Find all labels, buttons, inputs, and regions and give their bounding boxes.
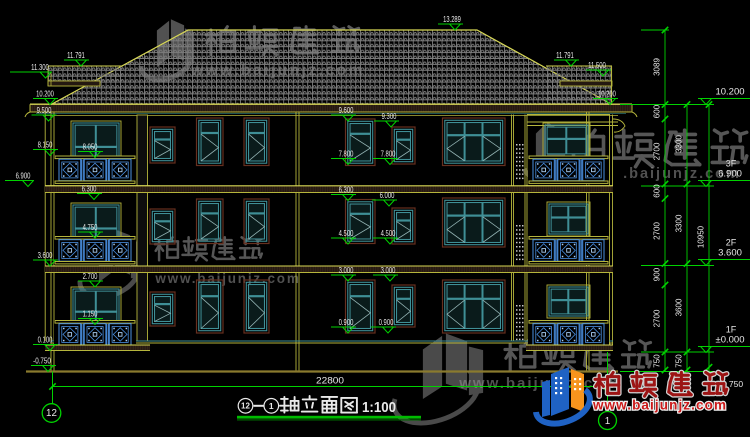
svg-text:11.500: 11.500	[588, 61, 606, 70]
svg-text:900: 900	[653, 267, 662, 281]
svg-text:600: 600	[653, 104, 662, 118]
svg-text:1F: 1F	[726, 325, 737, 335]
svg-text:3.600: 3.600	[718, 248, 742, 259]
svg-text:8.150: 8.150	[38, 141, 53, 150]
svg-text:8.050: 8.050	[83, 143, 98, 152]
svg-text:9.600: 9.600	[339, 106, 354, 115]
svg-text:6.900: 6.900	[718, 169, 742, 180]
svg-text:6.000: 6.000	[380, 191, 395, 200]
svg-text:1: 1	[269, 401, 274, 411]
svg-text:3F: 3F	[726, 159, 737, 169]
svg-text:9.500: 9.500	[37, 106, 52, 115]
svg-text:10.200: 10.200	[715, 87, 744, 98]
svg-text:3.000: 3.000	[381, 266, 396, 275]
svg-text:11.791: 11.791	[556, 51, 574, 60]
svg-text:7.800: 7.800	[381, 150, 396, 159]
svg-text:750: 750	[675, 354, 684, 368]
svg-text:13.289: 13.289	[443, 15, 461, 24]
svg-text:22800: 22800	[316, 376, 344, 386]
svg-text:1:100: 1:100	[362, 399, 396, 416]
svg-text:0.100: 0.100	[38, 336, 53, 345]
svg-text:3.000: 3.000	[339, 266, 354, 275]
svg-text:-0.750: -0.750	[33, 357, 51, 366]
svg-text:2700: 2700	[653, 222, 662, 240]
svg-text:750: 750	[729, 379, 743, 389]
svg-text:6.300: 6.300	[82, 185, 97, 194]
svg-text:10.200: 10.200	[36, 90, 54, 99]
svg-text:12: 12	[46, 408, 57, 419]
svg-text:600: 600	[653, 184, 662, 198]
svg-text:7.800: 7.800	[339, 150, 354, 159]
svg-text:11.791: 11.791	[67, 51, 85, 60]
svg-text:10950: 10950	[697, 225, 706, 248]
svg-text:1.150: 1.150	[83, 310, 98, 319]
svg-text:3089: 3089	[653, 58, 662, 76]
svg-text:2700: 2700	[653, 142, 662, 160]
svg-text:0.900: 0.900	[339, 318, 354, 327]
svg-text:10.200: 10.200	[598, 90, 616, 99]
svg-text:6.900: 6.900	[16, 172, 31, 181]
svg-text:0.900: 0.900	[379, 318, 394, 327]
svg-text:4.500: 4.500	[381, 229, 396, 238]
svg-text:4.500: 4.500	[339, 229, 354, 238]
svg-text:6.300: 6.300	[339, 186, 354, 195]
svg-text:4.750: 4.750	[83, 223, 98, 232]
svg-text:±0.000: ±0.000	[716, 335, 745, 346]
svg-text:3300: 3300	[675, 214, 684, 232]
svg-text:2.700: 2.700	[83, 272, 98, 281]
svg-text:2700: 2700	[653, 309, 662, 327]
svg-text:3.600: 3.600	[38, 251, 53, 260]
svg-text:3300: 3300	[675, 135, 684, 153]
svg-text:12: 12	[241, 402, 250, 411]
svg-text:1: 1	[605, 416, 610, 427]
svg-text:9.300: 9.300	[382, 112, 397, 121]
svg-text:11.300: 11.300	[31, 63, 49, 72]
svg-text:3600: 3600	[675, 298, 684, 316]
svg-text:www.baijunjz.com: www.baijunjz.com	[154, 271, 300, 286]
svg-text:2F: 2F	[726, 238, 737, 248]
svg-text:www.baijunjz.com: www.baijunjz.com	[592, 398, 727, 413]
svg-text:750: 750	[653, 354, 662, 368]
